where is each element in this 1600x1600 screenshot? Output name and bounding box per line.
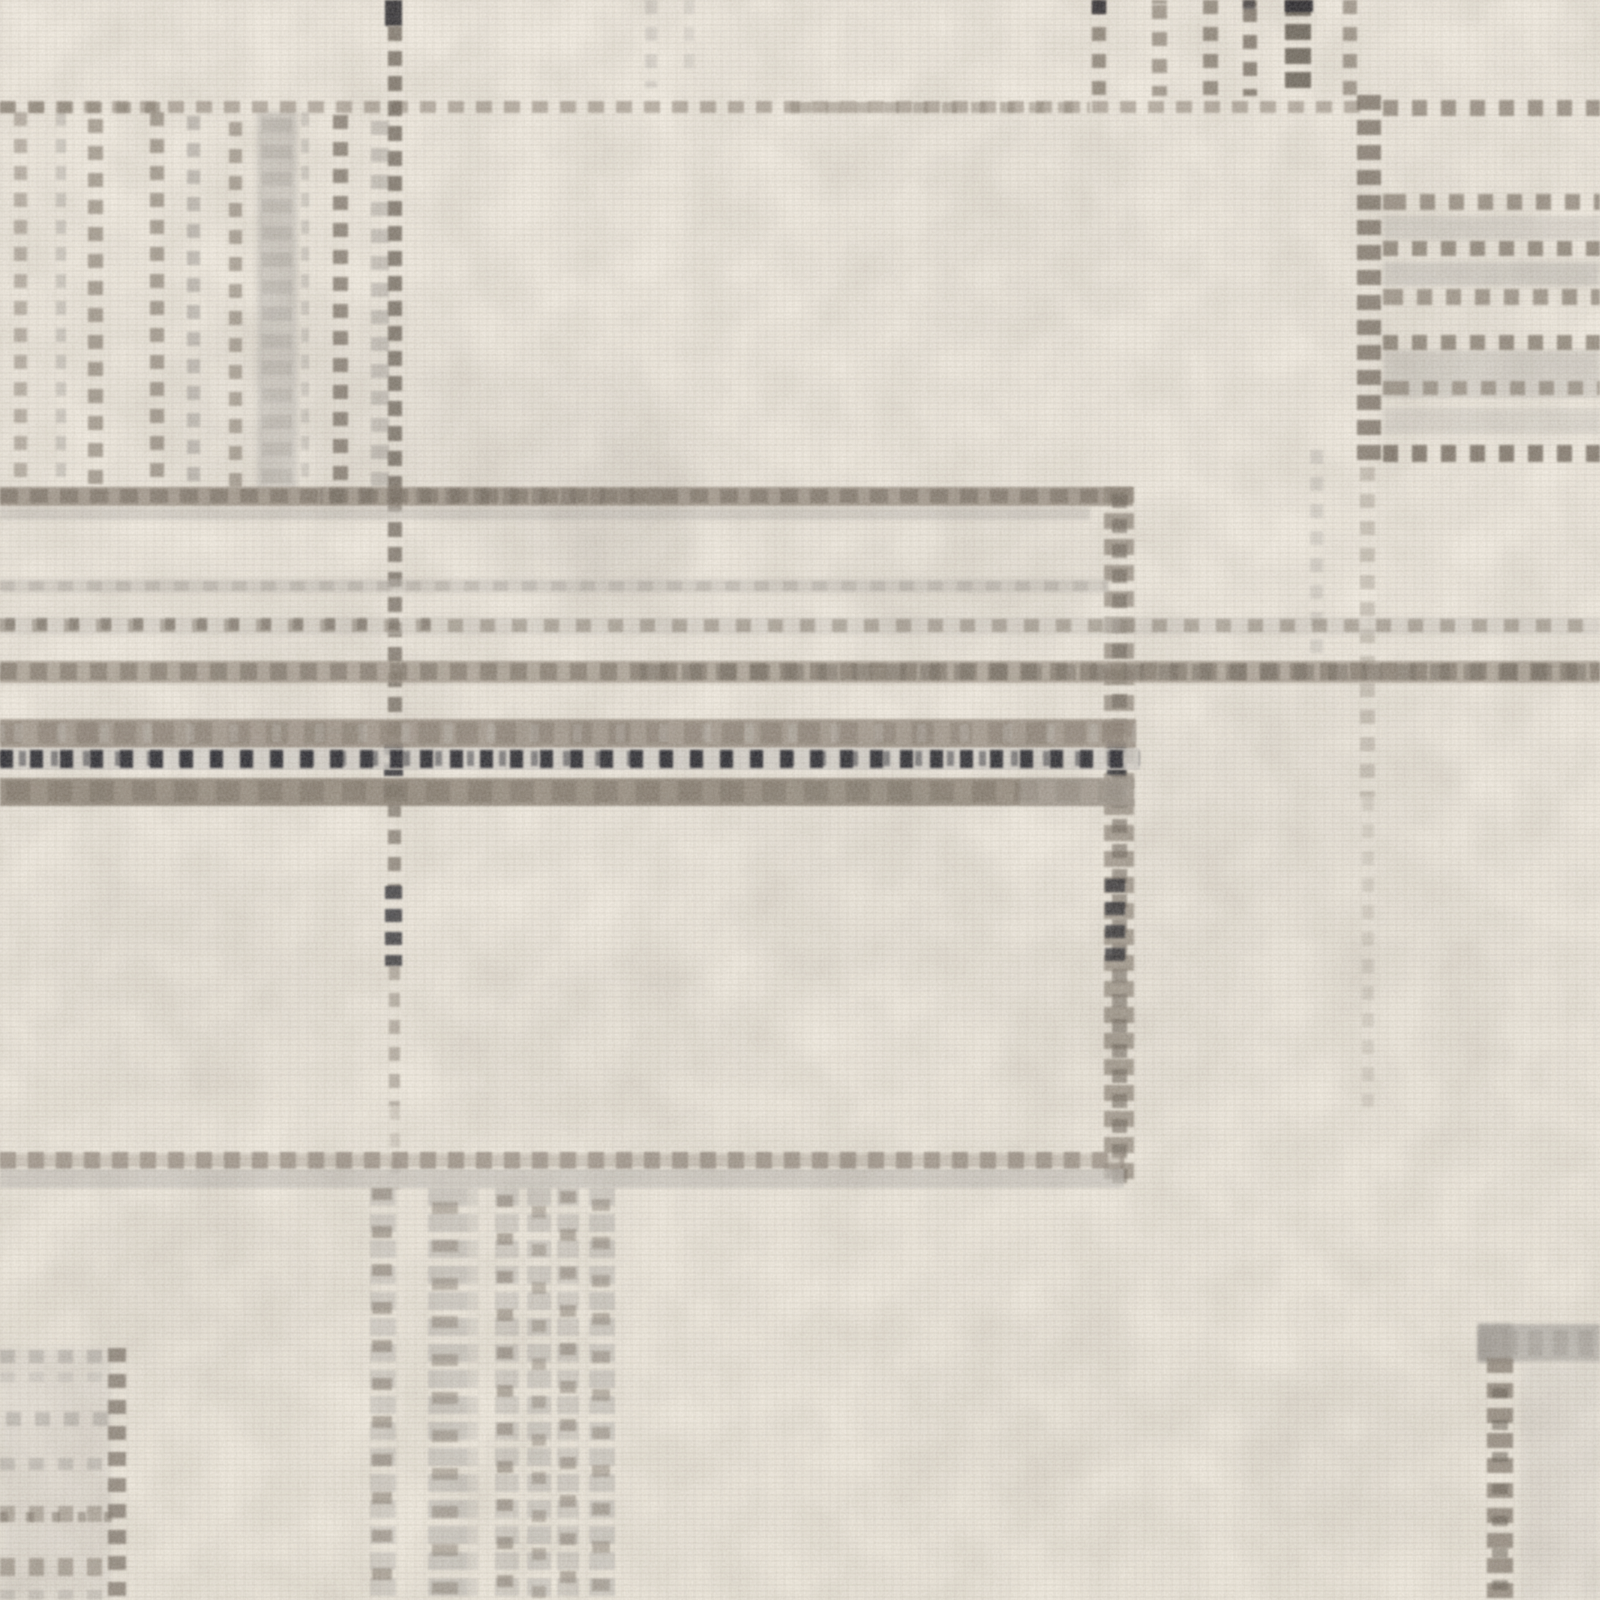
top-right-block-stripe	[1243, 0, 1257, 96]
top-left-block-stripe	[150, 112, 164, 488]
right-edge-stitch-dashes	[1105, 874, 1125, 962]
top-right-block-stripe	[1343, 0, 1357, 96]
left-vertical-line-fade	[389, 966, 400, 1106]
right-block-left-edge	[1357, 95, 1381, 467]
bottom-center-stripe-dots	[592, 1188, 610, 1600]
bottom-right-block-top-bar-dots	[1478, 1330, 1600, 1356]
rectangle-bottom-line-base	[0, 1154, 1124, 1167]
bottom-left-block-row	[0, 1590, 114, 1600]
left-vertical-line	[388, 26, 402, 491]
bottom-left-block-row	[0, 1558, 114, 1576]
top-left-block-stripe	[14, 112, 27, 488]
stitch-tip	[1285, 0, 1313, 12]
top-right-block-stripe	[1092, 0, 1106, 96]
right-block-row	[1383, 194, 1600, 210]
bottom-center-stripe-dots	[497, 1188, 513, 1600]
bottom-left-block-row-dark-dots	[0, 1512, 114, 1522]
right-block-gray-band	[1383, 216, 1600, 240]
right-block-gray-band	[1383, 262, 1600, 286]
left-vertical-line-tip	[385, 0, 402, 26]
top-center-faint-streak	[684, 0, 694, 70]
top-left-block-stripe	[56, 112, 66, 488]
rectangle-top-gray-fringe	[0, 507, 1090, 520]
tonal-wash	[150, 300, 510, 510]
bottom-center-stripe-dots	[432, 1188, 458, 1600]
tonal-wash	[1230, 1360, 1470, 1550]
bottom-center-stripe-dots	[372, 1188, 392, 1600]
right-edge-fade	[1362, 797, 1374, 1107]
left-vertical-line	[388, 803, 401, 888]
bottom-center-stripe-dots	[560, 1188, 576, 1600]
top-right-block-stripe	[1203, 0, 1218, 96]
bottom-left-block-row	[0, 1458, 114, 1470]
right-block-gray-band	[1383, 408, 1600, 434]
tonal-wash	[430, 950, 770, 1160]
stitch-row-black-dashes	[0, 751, 1140, 766]
top-left-block-stripe	[187, 112, 200, 488]
right-block-row	[1383, 335, 1600, 350]
bottom-left-block-edge	[108, 1348, 126, 1600]
taupe-band-1-flecks	[0, 724, 1136, 742]
rug-photo	[0, 0, 1600, 1600]
full-width-line-c-dark-right	[640, 664, 1600, 680]
top-right-block-stripe-dark	[1285, 0, 1311, 96]
tonal-wash	[850, 120, 1150, 350]
top-right-block-stripe	[1152, 0, 1167, 96]
right-block-row	[1383, 100, 1600, 116]
upper-rule-line-dark-left	[0, 102, 160, 113]
right-block-row	[1383, 241, 1600, 256]
top-left-block-stripe	[333, 112, 348, 488]
bottom-left-block-row	[0, 1372, 114, 1382]
inner-gray-line-dots	[0, 581, 1108, 591]
bottom-right-block-interior	[1520, 1362, 1600, 1600]
bottom-right-block-edge-dark-dots	[1492, 1380, 1508, 1600]
right-block-row	[1383, 381, 1600, 395]
tonal-wash	[700, 780, 1000, 980]
bottom-left-block-row	[0, 1412, 114, 1426]
rectangle-top-line-dark-mid	[320, 488, 660, 504]
taupe-band-2-shading	[0, 781, 1134, 802]
rectangle-right-edge-core	[1112, 487, 1127, 1187]
right-block-bottom-row	[1383, 445, 1600, 462]
taupe-band-2-light-end	[1020, 778, 1134, 806]
top-center-faint-streak	[645, 0, 657, 88]
stitch-tip	[1243, 0, 1255, 9]
rectangle-bottom-gray-line	[0, 1169, 1124, 1188]
upper-rule-line-dark-mid	[790, 102, 1090, 113]
bottom-center-stripe-dots	[532, 1188, 546, 1600]
tonal-wash	[40, 860, 330, 1100]
upper-rule-line	[0, 101, 1360, 113]
full-width-line-b-dark-left	[0, 618, 430, 630]
top-left-block-stripe	[88, 112, 103, 488]
bottom-center-stripe	[468, 1188, 478, 1600]
top-left-block-stripe	[371, 112, 389, 488]
top-left-block-stripe	[262, 112, 292, 488]
top-left-block-stripe	[229, 112, 242, 488]
tonal-wash	[900, 1300, 1200, 1520]
left-vertical-stitch-dashes	[385, 886, 402, 966]
bottom-left-block-row	[0, 1350, 114, 1363]
top-left-block-stripe	[301, 112, 309, 488]
stitch-tip	[1092, 0, 1106, 14]
right-block-row	[1383, 289, 1600, 305]
